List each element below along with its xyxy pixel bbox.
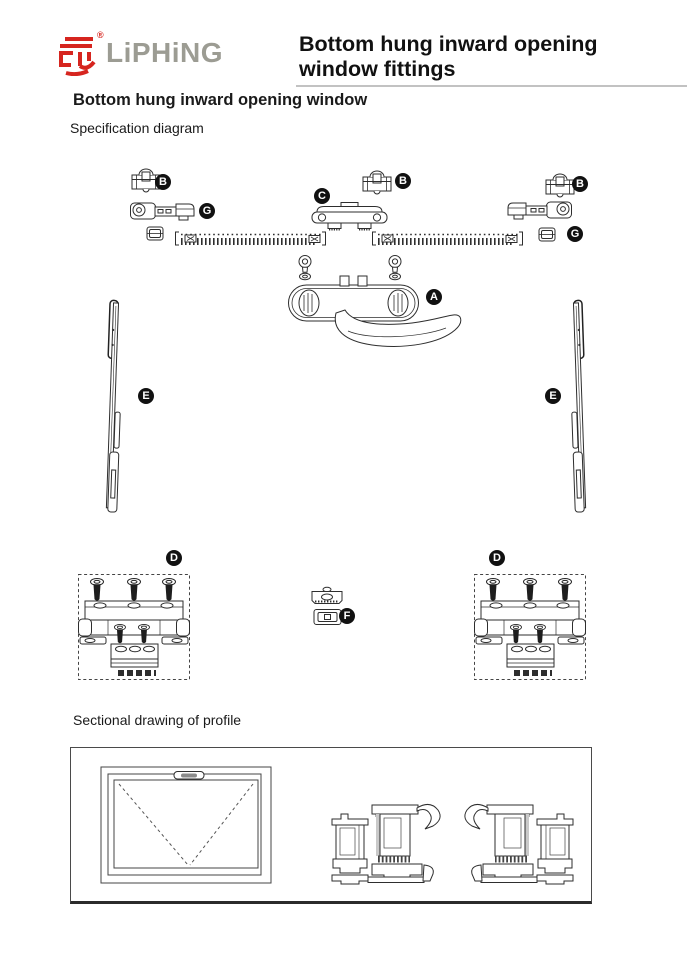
catalog-page: { "header": { "brand": "LiPHiNG", "regis… (0, 0, 687, 956)
corner-drive-right-drawing (508, 202, 572, 219)
part-label-e: E (545, 388, 561, 404)
corner-drive-left-drawing (131, 203, 195, 220)
part-label-c: C (314, 188, 330, 204)
central-lock-drawing (312, 203, 387, 230)
hinge-assembly-right-drawing (475, 575, 586, 680)
window-elevation-drawing (101, 767, 271, 883)
guide-clip-left-drawing (147, 227, 163, 240)
part-label-b: B (155, 174, 171, 190)
specification-diagram (0, 150, 687, 710)
brand-name: LiPHiNG (106, 37, 223, 69)
part-label-b: B (572, 176, 588, 192)
page-title-line2: window fittings (299, 57, 455, 81)
striker-plate-right-drawing (546, 174, 574, 197)
profile-section-left-drawing (332, 804, 440, 884)
part-label-e: E (138, 388, 154, 404)
sectional-drawing-label: Sectional drawing of profile (73, 712, 241, 728)
part-label-g: G (567, 226, 583, 242)
specification-diagram-label: Specification diagram (70, 120, 204, 136)
header-divider (296, 85, 687, 87)
striker-plate-center-drawing (363, 171, 391, 194)
small-fitting-top-drawing (312, 587, 342, 603)
brand-logo-icon (56, 36, 100, 76)
part-label-d: D (166, 550, 182, 566)
part-label-f: F (339, 608, 355, 624)
stay-arm-right-drawing (568, 300, 589, 512)
sectional-drawing-box (70, 747, 592, 904)
stay-arm-left-drawing (103, 300, 124, 512)
hinge-assembly-left-drawing (79, 575, 190, 680)
part-label-g: G (199, 203, 215, 219)
section-heading: Bottom hung inward opening window (73, 91, 367, 110)
profile-section-right-drawing (465, 804, 573, 884)
small-fitting-bottom-drawing (314, 610, 341, 625)
guide-clip-right-drawing (539, 228, 555, 241)
toothed-rack-center-drawing (373, 232, 523, 245)
registered-trademark: ® (97, 30, 104, 40)
sectional-drawing (71, 748, 591, 900)
part-label-d: D (489, 550, 505, 566)
toothed-rack-left-drawing (176, 232, 326, 245)
part-label-b: B (395, 173, 411, 189)
page-title-line1: Bottom hung inward opening (299, 32, 598, 56)
page-title: Bottom hung inward opening window fittin… (299, 32, 598, 82)
part-label-a: A (426, 289, 442, 305)
